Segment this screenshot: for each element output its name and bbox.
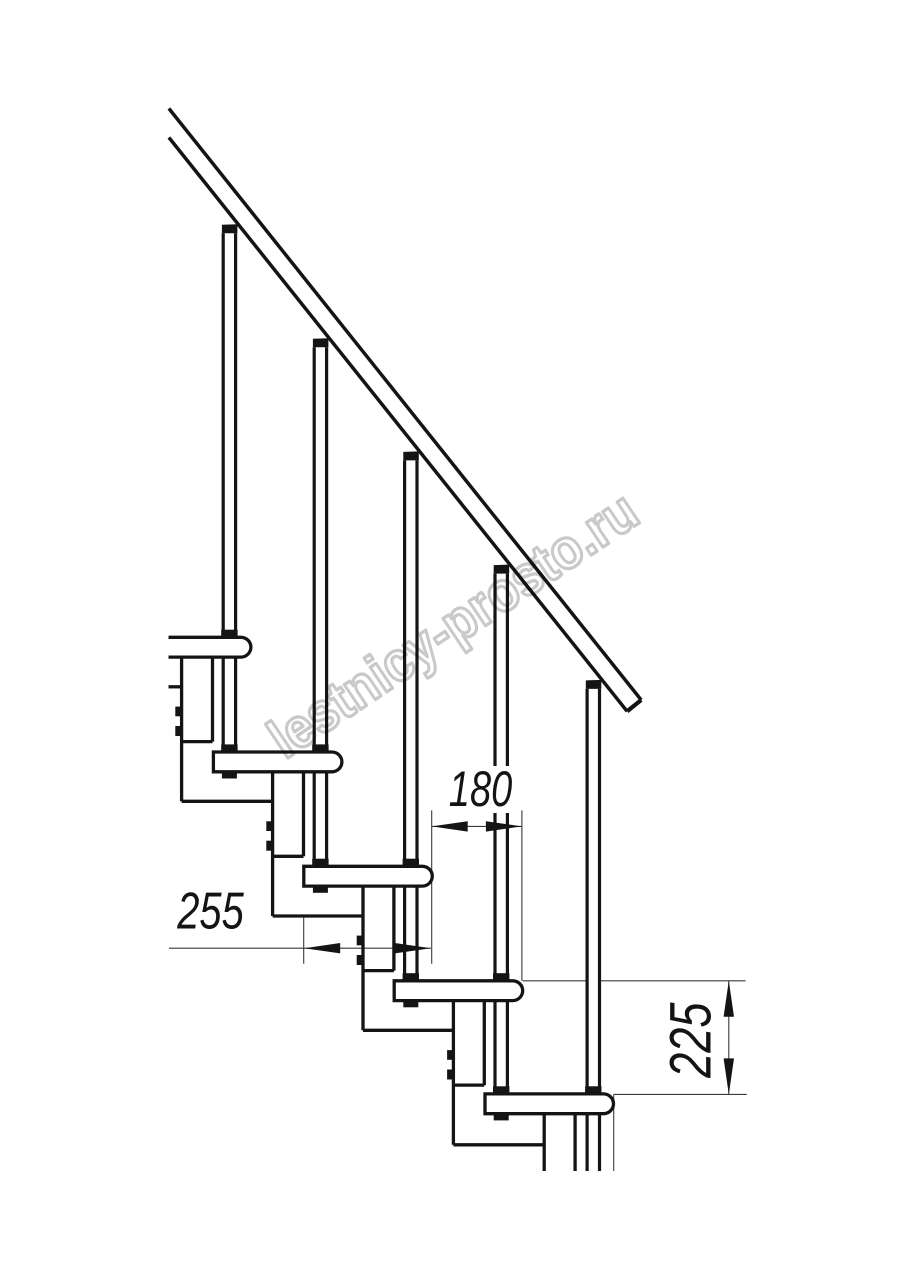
svg-text:180: 180 [449,762,513,817]
svg-text:225: 225 [659,1002,724,1079]
svg-text:255: 255 [176,881,244,939]
